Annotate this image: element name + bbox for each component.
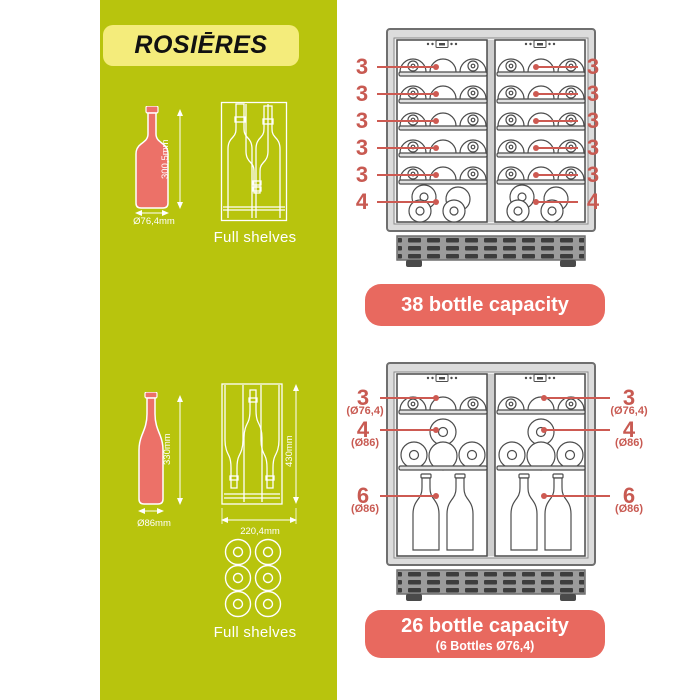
shelf-count: 4 (581, 190, 605, 214)
burgundy-bottle-diagram (128, 392, 192, 516)
shelf-count: 3 (581, 163, 605, 187)
leader-line (377, 93, 436, 95)
leader-line (536, 201, 578, 203)
shelf2-width-label: 220,4mm (212, 526, 308, 537)
leader-line (377, 147, 436, 149)
bottle-rings-grid (222, 538, 284, 618)
shelf2-height-label: 430mm (284, 412, 295, 490)
shelf2-caption: Full shelves (210, 624, 300, 641)
bottle1-height-label: 300,5mm (160, 120, 171, 198)
leader-line (377, 201, 436, 203)
capacity-badge-26: 26 bottle capacity (6 Bottles Ø76,4) (365, 610, 605, 658)
leader-line (380, 495, 436, 497)
leader-line (536, 66, 578, 68)
leader-line (544, 397, 610, 399)
leader-line (377, 174, 436, 176)
leader-line (536, 147, 578, 149)
shelf-count: 3 (349, 163, 375, 187)
leader-line (544, 429, 610, 431)
shelf-count: 3 (581, 55, 605, 79)
brand-logo-text: ROSIĒRES (134, 31, 267, 60)
foot (560, 594, 576, 601)
capacity-badge-subtext: (6 Bottles Ø76,4) (436, 639, 535, 653)
brand-logo: ROSIĒRES (103, 25, 299, 66)
shelf-count: 3 (349, 109, 375, 133)
leader-line (536, 174, 578, 176)
bottle-diameter: (Ø86) (336, 503, 394, 515)
bottle1-diameter-label: Ø76,4mm (112, 216, 196, 227)
foot (406, 594, 422, 601)
shelf-count: 3 (349, 136, 375, 160)
leader-line (536, 93, 578, 95)
shelf-diagram-1 (220, 101, 290, 223)
shelf-count: 4 (349, 190, 375, 214)
bottle-diameter: (Ø86) (598, 503, 660, 515)
bottle-shape (139, 398, 163, 504)
bottle-diameter: (Ø86) (598, 437, 660, 449)
leader-line (536, 120, 578, 122)
leader-line (377, 120, 436, 122)
bottle2-diameter-label: Ø86mm (112, 518, 196, 529)
leader-line (380, 397, 436, 399)
shelf1-caption: Full shelves (210, 229, 300, 246)
leader-line (544, 495, 610, 497)
infographic-canvas: ROSIĒRES 300,5mm Ø76,4mm Full shelves (0, 0, 700, 700)
green-panel (100, 0, 337, 700)
leader-line (380, 429, 436, 431)
capacity-badge-38: 38 bottle capacity (365, 284, 605, 326)
bottle2-height-label: 330mm (162, 410, 173, 488)
shelf-count: 3 (581, 109, 605, 133)
bottle-diameter: (Ø76,4) (336, 405, 394, 417)
shelf-count: 3 (349, 55, 375, 79)
bottle-diameter: (Ø76,4) (598, 405, 660, 417)
shelf-diagram-2 (220, 382, 310, 528)
foot (560, 260, 576, 267)
foot (406, 260, 422, 267)
capacity-badge-text: 26 bottle capacity (401, 615, 569, 638)
leader-line (377, 66, 436, 68)
capacity-badge-text: 38 bottle capacity (401, 294, 569, 317)
shelf-count: 3 (581, 136, 605, 160)
bottle-diameter: (Ø86) (336, 437, 394, 449)
shelf-count: 3 (581, 82, 605, 106)
shelf-count: 3 (349, 82, 375, 106)
